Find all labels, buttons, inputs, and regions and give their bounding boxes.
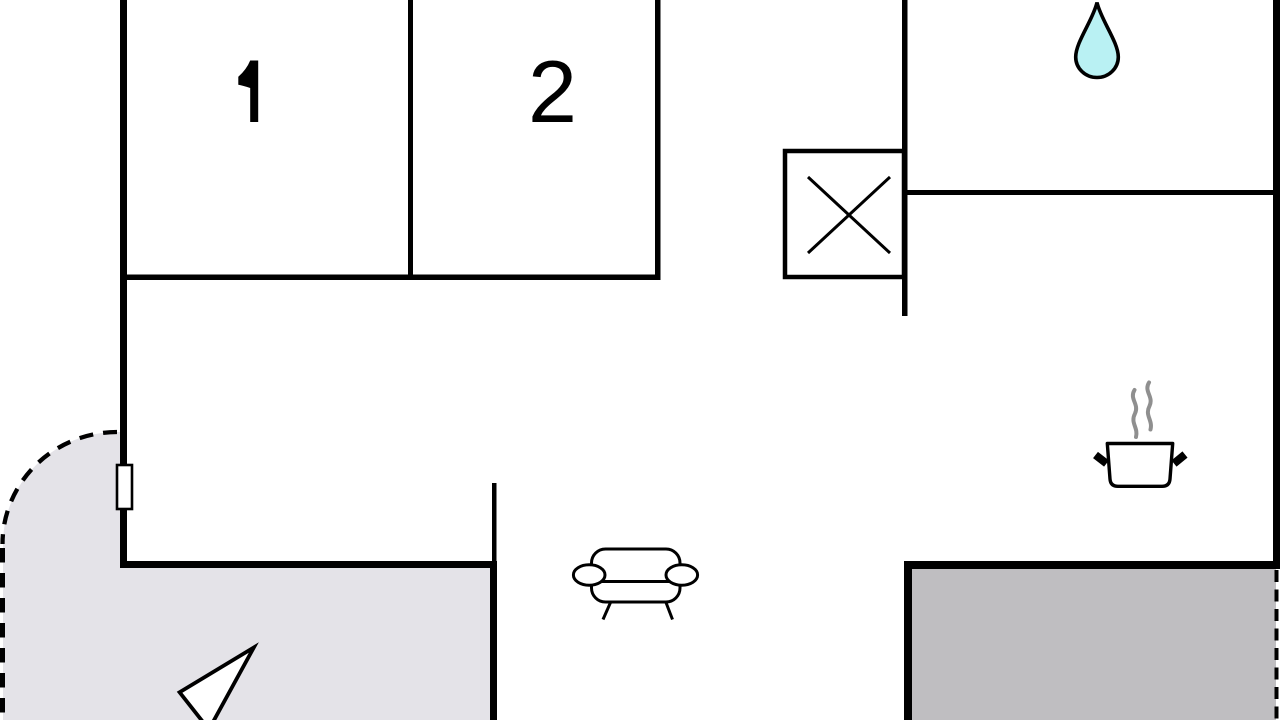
- svg-text:2: 2: [528, 42, 577, 141]
